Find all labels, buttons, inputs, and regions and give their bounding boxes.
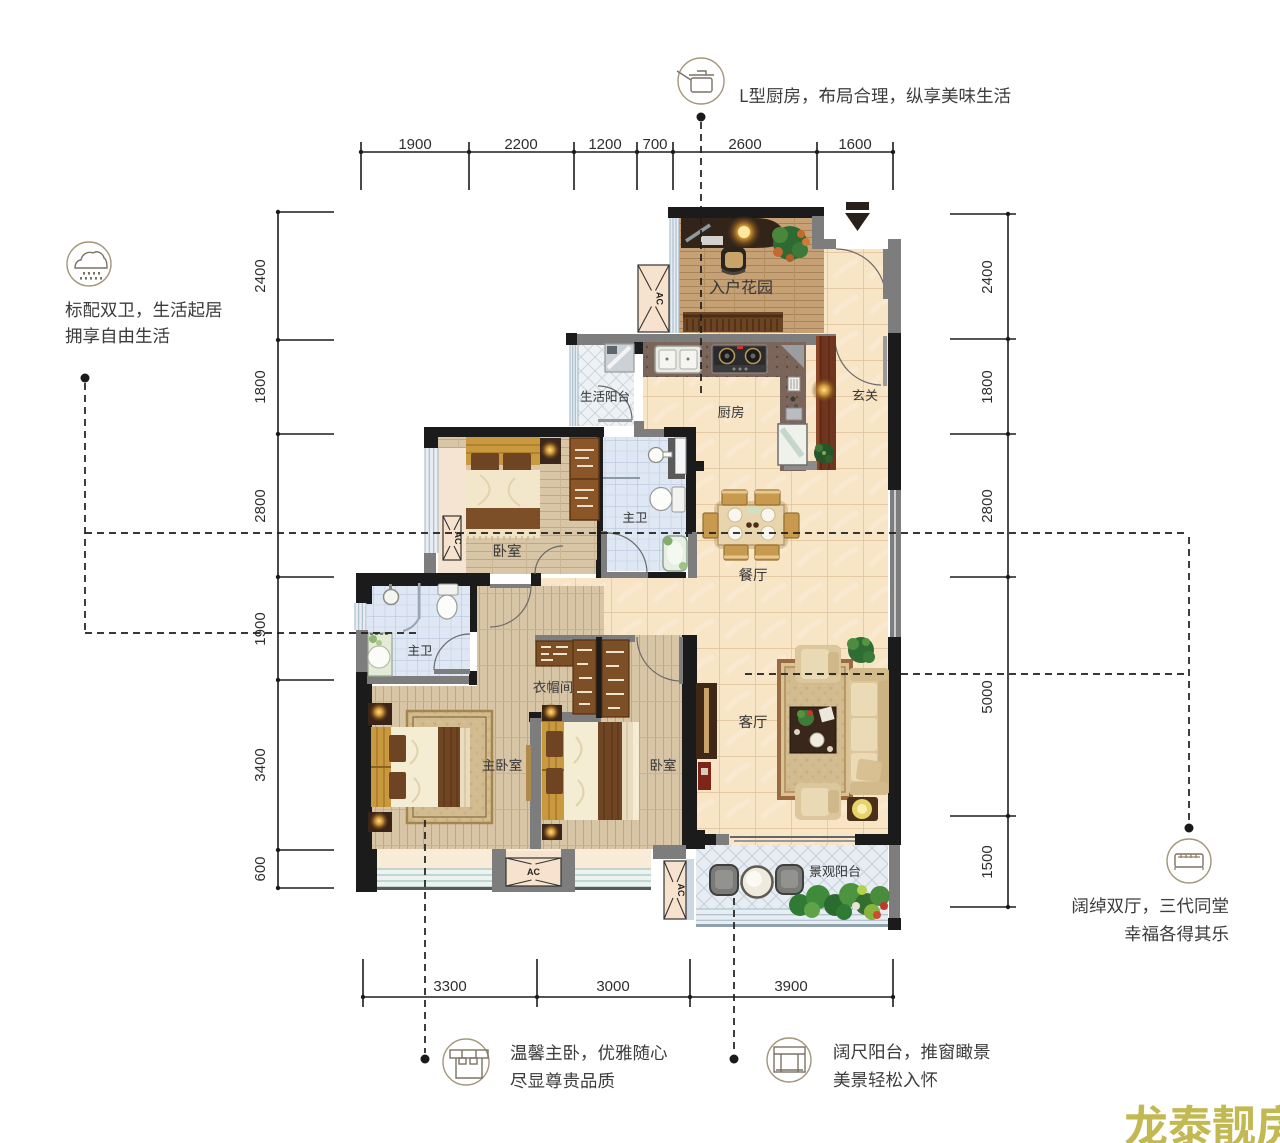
svg-text:5000: 5000 [979, 680, 996, 713]
svg-text:2200: 2200 [504, 136, 537, 153]
svg-text:1900: 1900 [252, 612, 269, 645]
svg-text:2800: 2800 [979, 489, 996, 522]
svg-text:1900: 1900 [398, 136, 431, 153]
svg-text:1200: 1200 [588, 136, 621, 153]
svg-text:1800: 1800 [979, 370, 996, 403]
svg-text:AC: AC [527, 867, 540, 877]
svg-text:1600: 1600 [838, 136, 871, 153]
svg-text:600: 600 [252, 856, 269, 881]
svg-text:3900: 3900 [774, 978, 807, 995]
svg-text:700: 700 [642, 136, 667, 153]
svg-text:3300: 3300 [433, 978, 466, 995]
svg-text:AC: AC [676, 884, 686, 897]
svg-text:2800: 2800 [252, 489, 269, 522]
svg-text:3000: 3000 [596, 978, 629, 995]
svg-text:1800: 1800 [252, 370, 269, 403]
svg-text:AC: AC [655, 292, 665, 305]
svg-text:3400: 3400 [252, 748, 269, 781]
svg-text:2400: 2400 [979, 260, 996, 293]
svg-text:2600: 2600 [728, 136, 761, 153]
svg-text:1500: 1500 [979, 845, 996, 878]
svg-text:2400: 2400 [252, 259, 269, 292]
